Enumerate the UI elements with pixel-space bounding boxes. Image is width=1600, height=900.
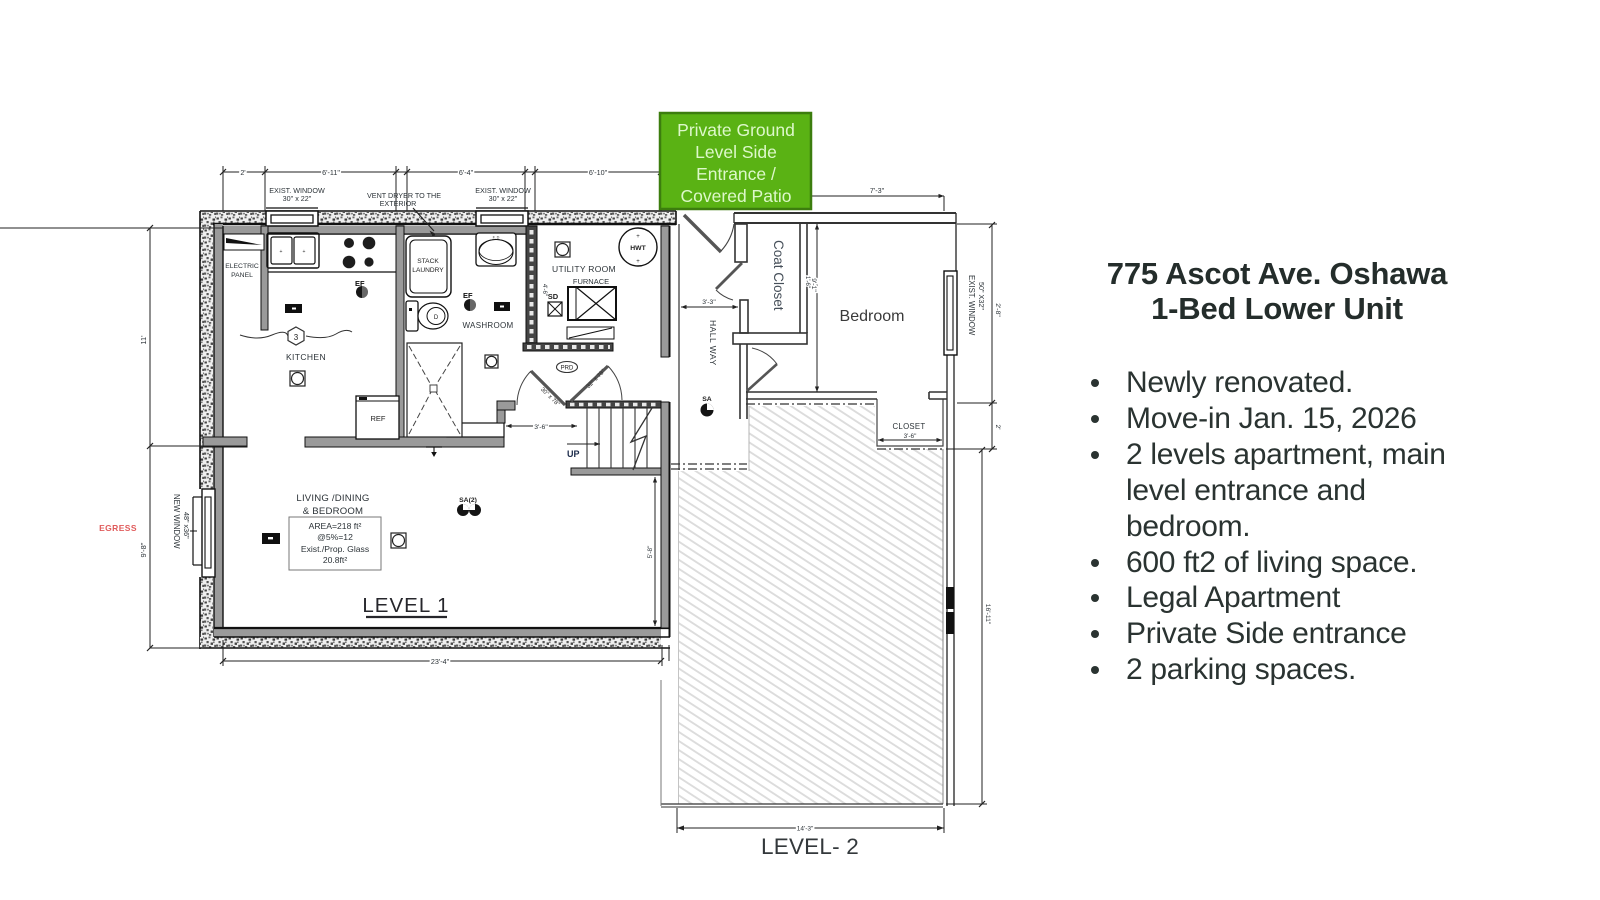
svg-text:FURNACE: FURNACE bbox=[573, 277, 609, 286]
svg-text:SD: SD bbox=[548, 292, 559, 301]
svg-text:23'-4": 23'-4" bbox=[431, 657, 450, 666]
svg-text:UTILITY ROOM: UTILITY ROOM bbox=[552, 264, 616, 274]
svg-text:3'-6": 3'-6" bbox=[534, 424, 548, 431]
svg-text:LIVING /DINING: LIVING /DINING bbox=[296, 493, 369, 504]
svg-text:WASHROOM: WASHROOM bbox=[463, 321, 514, 330]
svg-text:Exist./Prop. Glass: Exist./Prop. Glass bbox=[301, 544, 369, 554]
svg-text:1'-6": 1'-6" bbox=[804, 276, 810, 288]
svg-text:Bedroom: Bedroom bbox=[840, 308, 905, 325]
svg-text:2': 2' bbox=[994, 424, 1001, 429]
svg-text:5'-8": 5'-8" bbox=[647, 546, 654, 559]
svg-text:32" x 78": 32" x 78" bbox=[586, 369, 607, 390]
svg-text:LAUNDRY: LAUNDRY bbox=[412, 267, 444, 274]
svg-text:@5%=12: @5%=12 bbox=[317, 532, 353, 542]
svg-text:EXIST. WINDOW: EXIST. WINDOW bbox=[967, 275, 976, 336]
svg-text:6'-10": 6'-10" bbox=[589, 168, 608, 177]
svg-text:48" x36": 48" x36" bbox=[182, 512, 191, 539]
svg-text:REF: REF bbox=[371, 414, 386, 423]
svg-text:LEVEL 1: LEVEL 1 bbox=[362, 594, 449, 617]
svg-text:20.8ft²: 20.8ft² bbox=[323, 555, 348, 565]
svg-text:STACK: STACK bbox=[417, 258, 439, 265]
svg-text:EF: EF bbox=[463, 291, 473, 300]
svg-text:F. D: F. D bbox=[493, 236, 500, 240]
svg-text:Coat Closet: Coat Closet bbox=[771, 240, 786, 311]
svg-text:Private Ground: Private Ground bbox=[677, 120, 795, 140]
svg-text:+: + bbox=[303, 249, 306, 255]
svg-text:16'-11": 16'-11" bbox=[984, 604, 991, 625]
svg-text:30" x 22": 30" x 22" bbox=[283, 194, 312, 203]
svg-text:3'-3": 3'-3" bbox=[702, 299, 716, 306]
svg-text:6'-11": 6'-11" bbox=[322, 168, 340, 177]
svg-text:2'-8": 2'-8" bbox=[994, 303, 1001, 317]
svg-text:ELECTRIC: ELECTRIC bbox=[225, 263, 259, 270]
svg-text:UP: UP bbox=[567, 449, 580, 459]
svg-text:& BEDROOM: & BEDROOM bbox=[303, 506, 363, 517]
svg-text:PANEL: PANEL bbox=[231, 272, 253, 279]
svg-text:KITCHEN: KITCHEN bbox=[286, 352, 326, 362]
svg-text:Entrance /: Entrance / bbox=[696, 164, 776, 184]
svg-text:3'-6": 3'-6" bbox=[904, 433, 917, 440]
svg-text:HALL WAY: HALL WAY bbox=[708, 320, 718, 366]
svg-text:Covered Patio: Covered Patio bbox=[681, 186, 792, 206]
svg-text:4'-6": 4'-6" bbox=[541, 284, 548, 296]
svg-text:6'-4": 6'-4" bbox=[459, 168, 474, 177]
svg-text:Level Side: Level Side bbox=[695, 142, 777, 162]
svg-text:PRD: PRD bbox=[561, 366, 574, 372]
svg-text:AREA=218 ft²: AREA=218 ft² bbox=[309, 521, 362, 531]
svg-text:30" x 22": 30" x 22" bbox=[489, 194, 518, 203]
svg-text:7'-3": 7'-3" bbox=[870, 186, 885, 195]
svg-text:SA: SA bbox=[702, 396, 712, 403]
svg-text:2': 2' bbox=[240, 168, 246, 177]
svg-text:9'-1": 9'-1" bbox=[810, 278, 817, 292]
svg-text:14'-3": 14'-3" bbox=[797, 826, 814, 833]
svg-text:9'-8": 9'-8" bbox=[139, 542, 148, 557]
svg-text:SA(2): SA(2) bbox=[459, 497, 477, 504]
svg-text:+: + bbox=[280, 249, 283, 255]
svg-text:HWT: HWT bbox=[630, 245, 646, 252]
svg-text:D: D bbox=[434, 315, 439, 321]
svg-text:LEVEL- 2: LEVEL- 2 bbox=[761, 834, 859, 859]
svg-text:EGRESS: EGRESS bbox=[99, 523, 137, 533]
svg-text:NEW WINDOW: NEW WINDOW bbox=[172, 494, 181, 549]
svg-text:11': 11' bbox=[139, 335, 148, 345]
svg-text:50" X32": 50" X32" bbox=[977, 282, 986, 310]
svg-text:+: + bbox=[636, 234, 640, 240]
svg-text:EXTERIOR: EXTERIOR bbox=[380, 199, 417, 208]
svg-text:CLOSET: CLOSET bbox=[893, 422, 926, 431]
svg-text:3: 3 bbox=[294, 333, 299, 342]
svg-text:+: + bbox=[636, 259, 640, 265]
